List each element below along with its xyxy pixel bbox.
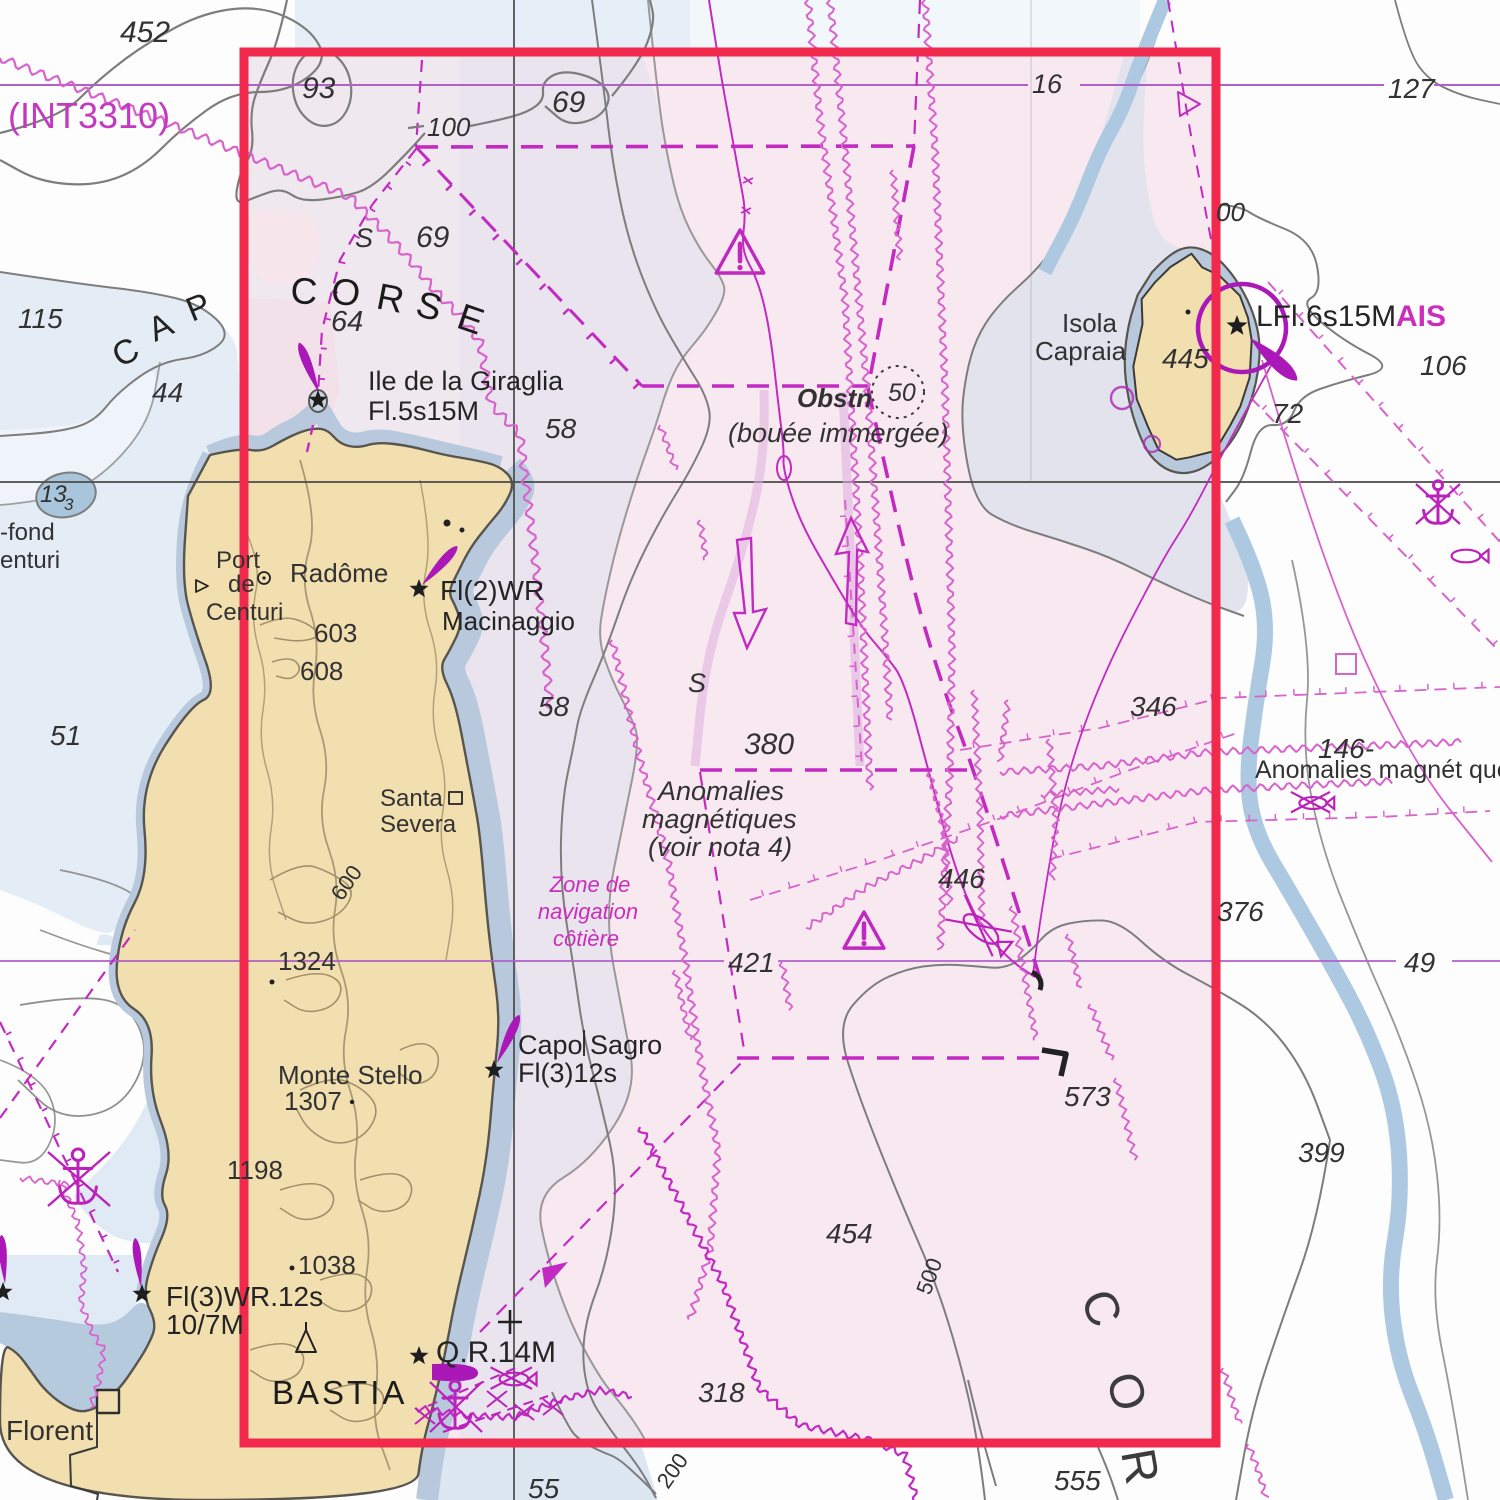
svg-text:1038: 1038	[298, 1250, 356, 1280]
svg-text:608: 608	[300, 656, 343, 686]
svg-text:51: 51	[50, 720, 81, 751]
svg-text:Severa: Severa	[380, 811, 457, 838]
svg-text:Fl(3)12s: Fl(3)12s	[518, 1058, 617, 1088]
svg-text:55: 55	[528, 1473, 560, 1500]
svg-text:376: 376	[1217, 896, 1264, 927]
svg-text:(voir nota 4): (voir nota 4)	[648, 832, 792, 862]
svg-text:346: 346	[1130, 691, 1177, 722]
svg-text:Q.R.14M: Q.R.14M	[436, 1336, 556, 1369]
svg-text:00: 00	[1216, 197, 1245, 227]
svg-text:72: 72	[1272, 398, 1304, 429]
svg-text:452: 452	[120, 16, 170, 49]
svg-text:Santa: Santa	[380, 785, 443, 812]
svg-text:58: 58	[545, 413, 577, 444]
svg-text:100: 100	[427, 112, 471, 142]
svg-text:10/7M: 10/7M	[166, 1309, 244, 1340]
svg-text:(bouée immergée): (bouée immergée)	[728, 418, 949, 448]
svg-text:380: 380	[744, 728, 794, 761]
svg-text:555: 555	[1054, 1465, 1101, 1496]
svg-text:3: 3	[64, 495, 74, 514]
svg-text:Capraia: Capraia	[1035, 336, 1127, 366]
svg-text:S: S	[688, 668, 706, 698]
svg-text:Centuri: Centuri	[206, 599, 283, 626]
svg-text:Port: Port	[216, 547, 260, 574]
svg-text:446: 446	[938, 863, 985, 894]
svg-text:Capo Sagro: Capo Sagro	[518, 1030, 662, 1060]
svg-text:454: 454	[826, 1218, 873, 1249]
svg-text:44: 44	[152, 377, 183, 408]
svg-text:127: 127	[1388, 73, 1436, 104]
svg-text:Florent: Florent	[6, 1415, 93, 1446]
svg-text:421: 421	[728, 947, 775, 978]
svg-text:Fl(2)WR: Fl(2)WR	[440, 575, 544, 606]
svg-text:-fond: -fond	[0, 519, 55, 546]
svg-text:50: 50	[888, 379, 916, 407]
svg-text:Isola: Isola	[1062, 308, 1117, 338]
svg-text:Anomalies: Anomalies	[656, 776, 784, 806]
svg-text:69: 69	[552, 86, 586, 119]
svg-text:C: C	[290, 270, 319, 312]
svg-text:Fl.5s15M: Fl.5s15M	[368, 396, 479, 426]
svg-text:1324: 1324	[278, 946, 336, 976]
svg-text:58: 58	[538, 691, 570, 722]
svg-text:Macinaggio: Macinaggio	[442, 606, 575, 636]
svg-text:Zone de: Zone de	[549, 872, 631, 897]
svg-text:1307: 1307	[284, 1086, 342, 1116]
svg-text:49: 49	[1404, 947, 1435, 978]
svg-text:BASTIA: BASTIA	[272, 1374, 407, 1411]
svg-text:LFl.6s15M: LFl.6s15M	[1256, 300, 1396, 333]
svg-text:O: O	[329, 270, 363, 314]
svg-text:1198: 1198	[227, 1155, 283, 1185]
svg-text:106: 106	[1420, 350, 1467, 381]
svg-text:magnétiques: magnétiques	[642, 804, 797, 834]
svg-text:93: 93	[302, 72, 336, 105]
svg-text:Ile de la Giraglia: Ile de la Giraglia	[368, 366, 564, 396]
svg-text:Radôme: Radôme	[290, 558, 388, 588]
svg-text:de: de	[228, 571, 255, 598]
svg-text:Fl(3)WR.12s: Fl(3)WR.12s	[166, 1281, 323, 1312]
svg-text:(INT3310): (INT3310)	[8, 95, 170, 136]
svg-text:Obstn: Obstn	[797, 383, 872, 413]
svg-text:318: 318	[698, 1377, 745, 1408]
svg-text:573: 573	[1064, 1081, 1111, 1112]
svg-text:enturi: enturi	[0, 547, 60, 574]
svg-text:AIS: AIS	[1396, 300, 1446, 333]
svg-text:399: 399	[1298, 1137, 1345, 1168]
svg-text:69: 69	[416, 221, 450, 254]
svg-text:S: S	[355, 223, 373, 253]
svg-text:côtière: côtière	[553, 926, 619, 951]
svg-text:16: 16	[1032, 69, 1063, 99]
svg-text:Anomalies magnét que: Anomalies magnét que	[1255, 756, 1500, 784]
svg-text:603: 603	[314, 618, 357, 648]
svg-text:115: 115	[18, 303, 63, 334]
svg-text:445: 445	[1162, 343, 1209, 374]
svg-text:navigation: navigation	[538, 899, 638, 924]
